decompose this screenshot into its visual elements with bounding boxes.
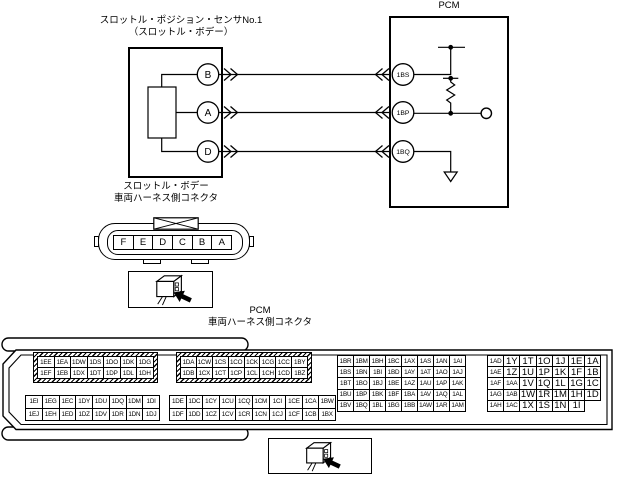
pin-grid-g2-bottom: 1DE1DC1CY1CU1CQ1CM1CI1CE1CA1BW1DF1DD1CZ1… bbox=[169, 395, 336, 421]
pin-cell-1DJ: 1DJ bbox=[142, 408, 160, 422]
connector-latch-bowtie bbox=[153, 217, 199, 230]
pin-row: 1EJ1EH1ED1DZ1DV1DR1DN1DJ bbox=[25, 408, 160, 422]
pin-cell-1S: 1S bbox=[536, 400, 553, 412]
pcm-pin-circles: 1BS 1BP 1BQ bbox=[392, 64, 414, 163]
sensor-pin-d-label: D bbox=[204, 147, 211, 158]
pin-cell-1CU: 1CU bbox=[219, 395, 237, 409]
pin-cell-1AH: 1AH bbox=[487, 400, 504, 412]
pin-cell-1EC: 1EC bbox=[59, 395, 77, 409]
pin-cell-1CJ: 1CJ bbox=[269, 408, 287, 422]
pin-cell-1CF: 1CF bbox=[285, 408, 303, 422]
pin-cell-1BG: 1BG bbox=[385, 400, 402, 412]
pin-row: 1DE1DC1CY1CU1CQ1CM1CI1CE1CA1BW bbox=[169, 395, 336, 409]
pin-cell-1CZ: 1CZ bbox=[202, 408, 220, 422]
pin-cell-1DQ: 1DQ bbox=[109, 395, 127, 409]
pin-cell-B: B bbox=[192, 235, 213, 250]
pin-cell-1N: 1N bbox=[552, 400, 569, 412]
pin-row: FEDCBA bbox=[113, 235, 232, 250]
pin-cell-1DX: 1DX bbox=[70, 367, 88, 379]
sensor-wire-b bbox=[162, 75, 198, 88]
connector-bottom-tab-1 bbox=[143, 259, 161, 264]
pin-cell-1CV: 1CV bbox=[219, 408, 237, 422]
pin-block-g1-top: 1EE1EA1DW1DS1DO1DK1DG1EF1EB1DX1DT1DP1DL1… bbox=[33, 352, 158, 383]
pin-cell-1DV: 1DV bbox=[92, 408, 110, 422]
pcm-caption-line2: 車両ハーネス側コネクタ bbox=[160, 317, 360, 329]
pin-grid-g1-top: 1EE1EA1DW1DS1DO1DK1DG1EF1EB1DX1DT1DP1DL1… bbox=[37, 356, 154, 379]
pin-cell-A: A bbox=[211, 235, 232, 250]
sensor-connector-pin-row: FEDCBA bbox=[113, 235, 232, 250]
pcm-view-box bbox=[268, 438, 372, 474]
pin-cell-1CN: 1CN bbox=[252, 408, 270, 422]
pin-cell-1DE: 1DE bbox=[169, 395, 187, 409]
pin-cell-1CX: 1CX bbox=[196, 367, 213, 379]
pin-grid-g2-top: 1DA1CW1CS1CO1CK1CG1CC1BY1DB1CX1CT1CP1CL1… bbox=[180, 356, 308, 379]
pin-row: 1DF1DD1CZ1CV1CR1CN1CJ1CF1CB1BX bbox=[169, 408, 336, 422]
pin-cell-1DU: 1DU bbox=[92, 395, 110, 409]
pcm-pin-1bp-label: 1BP bbox=[397, 110, 410, 117]
pin-cell-1BW: 1BW bbox=[318, 395, 336, 409]
pin-grid-g3: 1BR1BM1BH1BC1AX1AS1AN1AI1BS1BN1BI1BD1AY1… bbox=[337, 355, 466, 412]
pcm-view-icon bbox=[269, 439, 371, 473]
pin-cell-1CE: 1CE bbox=[285, 395, 303, 409]
pcm-connector-caption: PCM 車両ハーネス側コネクタ bbox=[160, 305, 360, 329]
pin-grid-g4: 1AD1Y1T1O1J1E1A1AE1Z1U1P1K1F1B1AF1AA1V1Q… bbox=[487, 355, 601, 412]
pin-cell-1AM: 1AM bbox=[449, 400, 466, 412]
sensor-pin-circles: B A D bbox=[197, 64, 218, 162]
pin-cell-1BL: 1BL bbox=[369, 400, 386, 412]
pin-cell-1CB: 1CB bbox=[302, 408, 320, 422]
sensor-pin-b-label: B bbox=[205, 70, 212, 81]
pin-cell-1AR: 1AR bbox=[433, 400, 450, 412]
pin-cell-1CT: 1CT bbox=[212, 367, 229, 379]
pin-cell-1CQ: 1CQ bbox=[235, 395, 253, 409]
pin-cell-1BV: 1BV bbox=[337, 400, 354, 412]
pin-cell-1AW: 1AW bbox=[417, 400, 434, 412]
pin-cell-1DF: 1DF bbox=[169, 408, 187, 422]
pin-cell-1BX: 1BX bbox=[318, 408, 336, 422]
pcm-caption-line1: PCM bbox=[160, 305, 360, 317]
sensor-wire-d bbox=[162, 138, 198, 152]
pin-cell-1EH: 1EH bbox=[42, 408, 60, 422]
pin-cell-1ED: 1ED bbox=[59, 408, 77, 422]
pin-grid-g1-bottom: 1EI1EG1EC1DY1DU1DQ1DM1DI1EJ1EH1ED1DZ1DV1… bbox=[25, 395, 160, 421]
pin-row: 1EI1EG1EC1DY1DU1DQ1DM1DI bbox=[25, 395, 160, 409]
pin-row: 1DB1CX1CT1CP1CL1CH1CD1BZ bbox=[180, 367, 308, 379]
pin-cell-1DH: 1DH bbox=[136, 367, 154, 379]
connector-view-box bbox=[128, 271, 213, 308]
pin-cell-1CY: 1CY bbox=[202, 395, 220, 409]
pin-cell-1BB: 1BB bbox=[401, 400, 418, 412]
pin-cell-1DD: 1DD bbox=[186, 408, 204, 422]
open-terminal bbox=[481, 108, 491, 118]
pin-cell-1DI: 1DI bbox=[142, 395, 160, 409]
pcm-pin-1bq-label: 1BQ bbox=[396, 149, 410, 156]
connector-bottom-tab-2 bbox=[191, 259, 209, 264]
connector-view-icon bbox=[129, 272, 212, 307]
pin-cell-1CP: 1CP bbox=[228, 367, 245, 379]
connector-top-rail bbox=[2, 338, 248, 351]
pin-cell-1CL: 1CL bbox=[244, 367, 261, 379]
pin-cell-1EF: 1EF bbox=[37, 367, 55, 379]
pin-cell-1CH: 1CH bbox=[259, 367, 276, 379]
pin-cell-1DL: 1DL bbox=[120, 367, 138, 379]
pin-cell-1DC: 1DC bbox=[186, 395, 204, 409]
pin-cell-1CI: 1CI bbox=[269, 395, 287, 409]
pin-cell-1BQ: 1BQ bbox=[353, 400, 370, 412]
pin-cell-1DT: 1DT bbox=[87, 367, 105, 379]
pin-cell-1EJ: 1EJ bbox=[25, 408, 43, 422]
pin-cell-1AC: 1AC bbox=[503, 400, 520, 412]
pin-cell-1BZ: 1BZ bbox=[291, 367, 308, 379]
pin-cell-1D: 1D bbox=[584, 389, 601, 401]
pin-cell-1DN: 1DN bbox=[126, 408, 144, 422]
pin-cell-1CM: 1CM bbox=[252, 395, 270, 409]
pin-cell-1DY: 1DY bbox=[75, 395, 93, 409]
pin-cell-1EG: 1EG bbox=[42, 395, 60, 409]
pin-cell-1DB: 1DB bbox=[180, 367, 197, 379]
potentiometer-element bbox=[148, 87, 176, 138]
pin-cell-E: E bbox=[133, 235, 154, 250]
pin-row: 1AH1AC1X1S1N1I bbox=[487, 400, 601, 412]
pin-cell-1EI: 1EI bbox=[25, 395, 43, 409]
pin-cell-1DM: 1DM bbox=[126, 395, 144, 409]
pin-block-g2-top: 1DA1CW1CS1CO1CK1CG1CC1BY1DB1CX1CT1CP1CL1… bbox=[176, 352, 312, 383]
pin-cell-1CA: 1CA bbox=[302, 395, 320, 409]
pin-cell-1DP: 1DP bbox=[103, 367, 121, 379]
pin-cell-1EB: 1EB bbox=[54, 367, 72, 379]
pin-cell-1DR: 1DR bbox=[109, 408, 127, 422]
pin-cell-C: C bbox=[172, 235, 193, 250]
pin-cell-1CD: 1CD bbox=[275, 367, 292, 379]
pin-cell-1CR: 1CR bbox=[235, 408, 253, 422]
pin-cell-D: D bbox=[152, 235, 173, 250]
pin-cell-1X: 1X bbox=[519, 400, 536, 412]
pin-cell-1DZ: 1DZ bbox=[75, 408, 93, 422]
pin-row: 1BV1BQ1BL1BG1BB1AW1AR1AM bbox=[337, 400, 466, 412]
wiring-schematic: B A D 1BS 1BP 1BQ bbox=[0, 0, 618, 215]
connector-side-tab-left bbox=[94, 236, 99, 247]
connector-side-tab-right bbox=[249, 236, 254, 247]
pcm-harness-connector: 1EE1EA1DW1DS1DO1DK1DG1EF1EB1DX1DT1DP1DL1… bbox=[0, 336, 618, 476]
pin-row: 1EF1EB1DX1DT1DP1DL1DH bbox=[37, 367, 154, 379]
sensor-pin-a-label: A bbox=[205, 108, 212, 119]
pcm-pin-1bs-label: 1BS bbox=[397, 72, 410, 79]
pin-cell-1I: 1I bbox=[568, 400, 585, 412]
pin-cell-F: F bbox=[113, 235, 134, 250]
